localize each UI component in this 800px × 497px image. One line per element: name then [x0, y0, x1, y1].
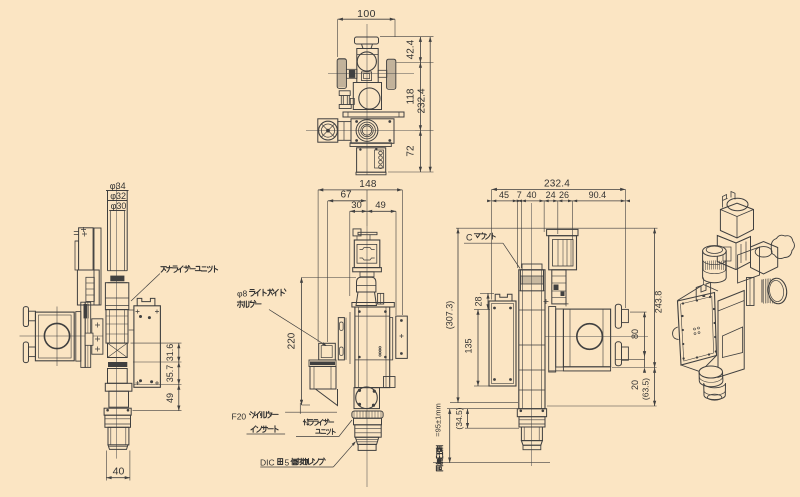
svg-text:φ32: φ32	[110, 191, 126, 201]
svg-text:135: 135	[464, 338, 474, 353]
svg-text:DIC: DIC	[260, 458, 275, 468]
svg-text:40: 40	[526, 190, 536, 200]
svg-text:30: 30	[351, 200, 362, 211]
svg-text:28: 28	[474, 296, 484, 306]
svg-text:24: 24	[546, 190, 556, 200]
svg-text:220: 220	[287, 332, 298, 349]
svg-text:(63.5): (63.5)	[641, 378, 651, 400]
svg-text:232.4: 232.4	[544, 179, 570, 190]
svg-text:80: 80	[630, 329, 640, 339]
svg-text:49: 49	[165, 393, 175, 403]
svg-text:=95±1mm: =95±1mm	[434, 403, 443, 437]
svg-text:7: 7	[517, 190, 522, 200]
svg-text:40: 40	[113, 466, 125, 478]
svg-text:72: 72	[406, 145, 417, 157]
svg-text:67: 67	[340, 190, 352, 201]
svg-text:5: 5	[285, 458, 290, 468]
svg-text:232.4: 232.4	[417, 88, 428, 113]
svg-text:φ8: φ8	[237, 289, 248, 299]
svg-text:42.4: 42.4	[406, 39, 417, 59]
svg-text:90.4: 90.4	[589, 190, 607, 200]
svg-text:49: 49	[375, 200, 386, 211]
svg-text:C: C	[466, 233, 473, 243]
svg-text:100: 100	[357, 8, 376, 20]
svg-text:118: 118	[406, 88, 417, 104]
svg-text:φ30: φ30	[111, 201, 127, 211]
svg-text:45: 45	[499, 190, 509, 200]
svg-text:243.8: 243.8	[654, 291, 664, 314]
svg-text:(34.5): (34.5)	[454, 407, 464, 429]
svg-text:35.7: 35.7	[165, 365, 175, 383]
svg-text:148: 148	[359, 179, 377, 190]
svg-text:20: 20	[630, 380, 640, 390]
svg-text:(307.3): (307.3)	[445, 301, 455, 330]
svg-text:31.6: 31.6	[165, 344, 175, 362]
svg-text:φ34: φ34	[110, 181, 126, 191]
svg-text:F20: F20	[232, 412, 247, 422]
svg-text:26: 26	[559, 190, 569, 200]
